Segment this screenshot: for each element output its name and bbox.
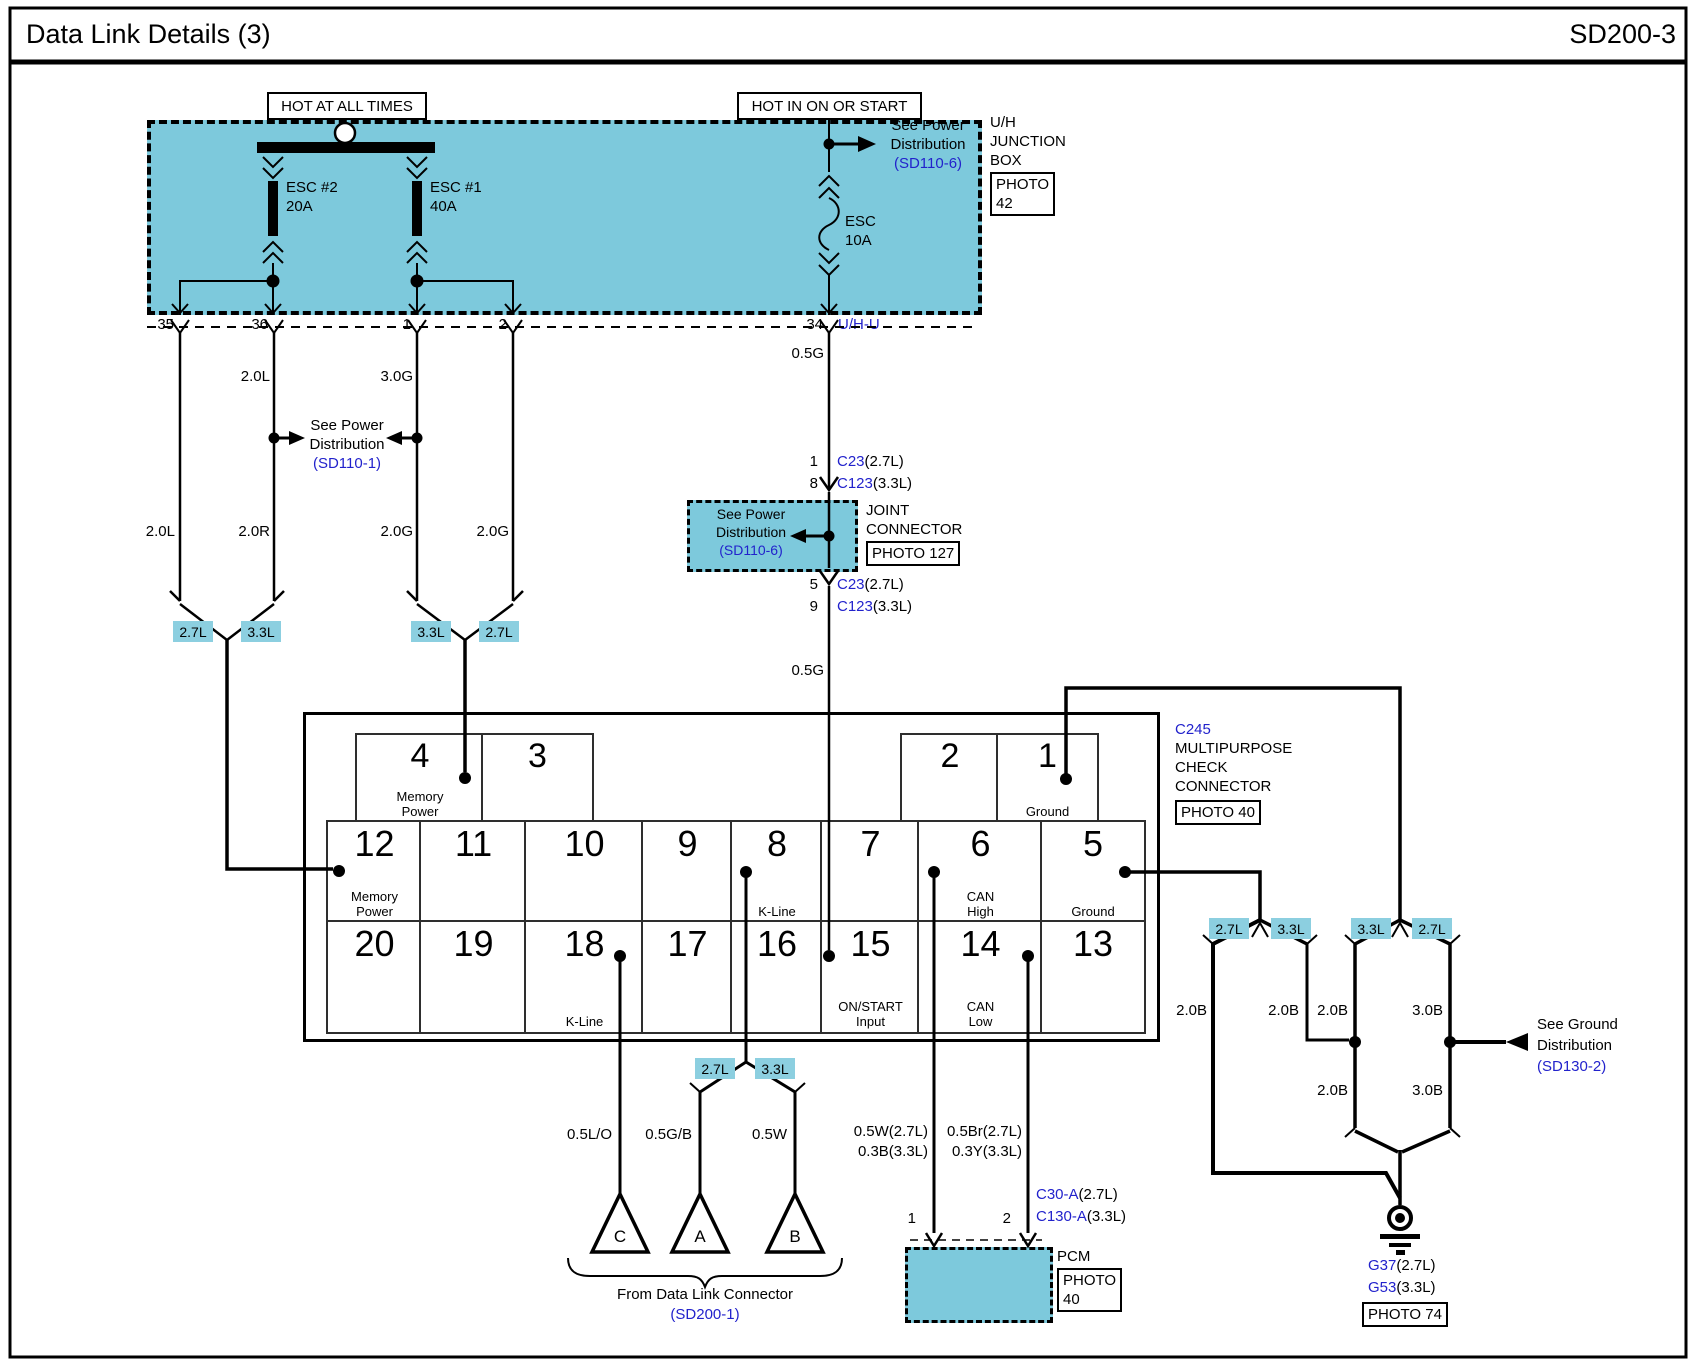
c245-cell-1: 1 Ground xyxy=(996,733,1099,824)
c245-cell-7: 7 xyxy=(820,820,921,924)
cell-20-num: 20 xyxy=(328,923,421,965)
pin-36: 36 xyxy=(228,316,268,334)
c245-cell-20: 20 xyxy=(326,920,423,1034)
conn-c123-engine2: (3.3L) xyxy=(873,598,912,615)
cell-12-label: Memory Power xyxy=(328,889,421,919)
engine-tag-2-7l-kline: 2.7L xyxy=(695,1058,735,1079)
cell-15-label: ON/START Input xyxy=(822,999,919,1029)
see-ground-line1: See Ground xyxy=(1537,1014,1618,1035)
photo-42-box: PHOTO 42 xyxy=(990,172,1055,216)
ground-ref-g53: G53(3.3L) xyxy=(1368,1279,1436,1297)
joint-pin-5: 5 xyxy=(796,576,818,594)
see-ground-arrow-left-icon xyxy=(1506,1033,1528,1051)
wire-label-pcm2: 0.5Br(2.7L) 0.3Y(3.3L) xyxy=(932,1122,1022,1162)
wire-label-pcm1-33: 0.3B(3.3L) xyxy=(838,1142,928,1162)
g53-engine: (3.3L) xyxy=(1396,1279,1435,1296)
photo-74-box: PHOTO 74 xyxy=(1362,1302,1448,1327)
uh-junction-box-label: U/H JUNCTION BOX xyxy=(990,113,1066,170)
photo-42-line2: 42 xyxy=(996,194,1049,213)
wire-label-0-5g-top: 0.5G xyxy=(779,345,824,363)
cell-3-num: 3 xyxy=(483,737,592,776)
cell-1-num: 1 xyxy=(998,737,1097,776)
wire-label-2-0b-1: 2.0B xyxy=(1162,1002,1207,1020)
wire-label-2-0b-2: 2.0B xyxy=(1254,1002,1299,1020)
photo-74-label: PHOTO 74 xyxy=(1368,1306,1442,1323)
cell-4-label2: Power xyxy=(357,804,483,819)
joint-name-line1: JOINT xyxy=(866,501,962,520)
wire-label-0-5lo: 0.5L/O xyxy=(558,1126,612,1144)
cell-8-label: K-Line xyxy=(732,904,822,919)
wire-label-pcm1: 0.5W(2.7L) 0.3B(3.3L) xyxy=(838,1122,928,1162)
uh-line2: JUNCTION xyxy=(990,132,1066,151)
c245-id-link: C245 xyxy=(1175,720,1292,739)
cell-11-num: 11 xyxy=(421,823,526,865)
engine-tag-3-3l-gnd2: 3.3L xyxy=(1351,918,1391,939)
wire-label-pcm1-27: 0.5W(2.7L) xyxy=(838,1122,928,1142)
c245-cell-6: 6 CAN High xyxy=(917,820,1044,924)
hot-at-all-times-box: HOT AT ALL TIMES xyxy=(267,92,427,120)
wire-label-2-0l-top: 2.0L xyxy=(225,368,270,386)
wire-label-pcm2-27: 0.5Br(2.7L) xyxy=(932,1122,1022,1142)
wire-label-2-0b-4: 2.0B xyxy=(1303,1082,1348,1100)
joint-name-line2: CONNECTOR xyxy=(866,520,962,539)
cell-5-label: Ground xyxy=(1042,904,1144,919)
joint-conn-ref-33-bottom: C123(3.3L) xyxy=(837,598,912,616)
wire-label-3-0g: 3.0G xyxy=(368,368,413,386)
wire-label-2-0g-b: 2.0G xyxy=(464,523,509,541)
see-power-line1: See Power xyxy=(872,116,984,135)
pcm-conn-ref-27: C30-A(2.7L) xyxy=(1036,1186,1118,1204)
c245-cell-17: 17 xyxy=(641,920,734,1034)
c245-cell-4: 4 Memory Power xyxy=(355,733,485,824)
engine-tag-2-7l-gnd1: 2.7L xyxy=(1209,918,1249,939)
engine-tag-2-7l-gnd2: 2.7L xyxy=(1412,918,1452,939)
from-data-link-connector-label: From Data Link Connector xyxy=(555,1286,855,1304)
conn-c123-engine: (3.3L) xyxy=(873,475,912,492)
conn-c23-engine2: (2.7L) xyxy=(865,576,904,593)
cell-13-num: 13 xyxy=(1042,923,1144,965)
photo-127-box: PHOTO 127 xyxy=(866,541,960,566)
cell-10-num: 10 xyxy=(526,823,643,865)
conn-c23-engine: (2.7L) xyxy=(865,453,904,470)
photo-40-label: PHOTO 40 xyxy=(1181,804,1255,821)
cell-4-label1: Memory xyxy=(357,789,483,804)
fuse-esc-amp: 10A xyxy=(845,231,872,250)
see-power2-line2: Distribution xyxy=(690,523,812,541)
c245-cell-9: 9 xyxy=(641,820,734,924)
cell-12-label1: Memory xyxy=(328,889,421,904)
ground-splits xyxy=(1203,920,1528,1205)
joint-pin-8: 8 xyxy=(796,475,818,493)
pin-2: 2 xyxy=(467,316,507,334)
uh-line1: U/H xyxy=(990,113,1066,132)
cell-6-label2: High xyxy=(919,904,1042,919)
cell-14-num: 14 xyxy=(919,923,1042,965)
joint-pin-1: 1 xyxy=(796,453,818,471)
engine-tag-3-3l-a: 3.3L xyxy=(241,621,281,642)
conn-c123-link: C123 xyxy=(837,475,873,492)
cell-14-label1: CAN xyxy=(919,999,1042,1014)
cell-18-num: 18 xyxy=(526,923,643,965)
pin-34: 34 xyxy=(783,316,823,334)
photo-127-label: PHOTO 127 xyxy=(872,545,954,562)
pcm-conn-ref-33: C130-A(3.3L) xyxy=(1036,1208,1126,1226)
fuse-esc2-name: ESC #2 xyxy=(286,178,338,197)
see-power2-line1: See Power xyxy=(690,505,812,523)
pcm-pin-receptacles xyxy=(910,1233,1042,1246)
g37-engine: (2.7L) xyxy=(1396,1257,1435,1274)
cell-15-label2: Input xyxy=(822,1014,919,1029)
see-power-distribution-sd110-1: See Power Distribution (SD110-1) xyxy=(296,416,398,473)
photo-40-pcm-box: PHOTO 40 xyxy=(1057,1268,1122,1312)
photo-40-pcm-line1: PHOTO xyxy=(1063,1271,1116,1290)
c245-cell-13: 13 xyxy=(1040,920,1146,1034)
c245-cell-19: 19 xyxy=(419,920,528,1034)
brace-icon xyxy=(568,1258,842,1287)
see-power-distribution-sd110-6-joint: See Power Distribution (SD110-6) xyxy=(690,505,812,559)
pcm-name: PCM xyxy=(1057,1248,1090,1266)
cell-15-label1: ON/START xyxy=(822,999,919,1014)
cell-16-num: 16 xyxy=(732,923,822,965)
fuse-esc-name: ESC xyxy=(845,212,876,231)
cell-19-num: 19 xyxy=(421,923,526,965)
joint-conn-ref-27-bottom: C23(2.7L) xyxy=(837,576,904,594)
cell-6-label1: CAN xyxy=(919,889,1042,904)
conn-c123-link2: C123 xyxy=(837,598,873,615)
see-power2-ref-link: (SD110-6) xyxy=(690,541,812,559)
wire-label-3-0b-2: 3.0B xyxy=(1398,1082,1443,1100)
cell-18-label: K-Line xyxy=(526,1014,643,1029)
see-power1-line2: Distribution xyxy=(296,435,398,454)
cell-15-num: 15 xyxy=(822,923,919,965)
photo-42-line1: PHOTO xyxy=(996,175,1049,194)
sd200-1-ref-link: (SD200-1) xyxy=(555,1306,855,1324)
c245-cell-3: 3 xyxy=(481,733,594,824)
cell-6-label: CAN High xyxy=(919,889,1042,919)
cell-17-num: 17 xyxy=(643,923,732,965)
cell-12-num: 12 xyxy=(328,823,421,865)
see-ground-ref-link: (SD130-2) xyxy=(1537,1056,1618,1077)
cell-9-num: 9 xyxy=(643,823,732,865)
cell-14-label2: Low xyxy=(919,1014,1042,1029)
hot-at-all-times-label: HOT AT ALL TIMES xyxy=(281,98,413,115)
c245-label-block: C245 MULTIPURPOSE CHECK CONNECTOR xyxy=(1175,720,1292,796)
wire-label-2-0l: 2.0L xyxy=(130,523,175,541)
photo-40-pcm-line2: 40 xyxy=(1063,1290,1116,1309)
g37-link: G37 xyxy=(1368,1257,1396,1274)
conn-c23-link2: C23 xyxy=(837,576,865,593)
pcm-box xyxy=(905,1247,1053,1323)
joint-conn-ref-27-top: C23(2.7L) xyxy=(837,453,904,471)
c245-cell-11: 11 xyxy=(419,820,528,924)
pin-1: 1 xyxy=(371,316,411,334)
feed-wires xyxy=(170,333,523,640)
c245-cell-18: 18 K-Line xyxy=(524,920,645,1034)
c245-name-line2: CHECK xyxy=(1175,758,1292,777)
engine-tag-2-7l-b: 2.7L xyxy=(479,621,519,642)
see-ground-distribution-sd130-2: See Ground Distribution (SD130-2) xyxy=(1537,1014,1618,1077)
wire-label-2-0g-a: 2.0G xyxy=(368,523,413,541)
engine-tag-3-3l-b: 3.3L xyxy=(411,621,451,642)
c245-cell-8: 8 K-Line xyxy=(730,820,824,924)
conn-c30a-link: C30-A xyxy=(1036,1186,1079,1203)
joint-pin-9: 9 xyxy=(796,598,818,616)
hot-in-on-or-start-label: HOT IN ON OR START xyxy=(752,98,908,115)
cell-7-num: 7 xyxy=(822,823,919,865)
uhu-wire-name: U/H-U xyxy=(838,316,880,334)
see-power1-ref-link: (SD110-1) xyxy=(296,454,398,473)
c245-name-line3: CONNECTOR xyxy=(1175,777,1292,796)
cell-1-label: Ground xyxy=(998,804,1097,819)
triangle-b-letter: B xyxy=(783,1228,807,1246)
page-title: Data Link Details (3) xyxy=(26,18,271,50)
wire-label-0-5w: 0.5W xyxy=(735,1126,787,1144)
pcm-pin-1: 1 xyxy=(894,1210,916,1228)
ground-symbol-icon xyxy=(1380,1207,1420,1255)
triangle-c-letter: C xyxy=(608,1228,632,1246)
joint-conn-ref-33-top: C123(3.3L) xyxy=(837,475,912,493)
see-ground-line2: Distribution xyxy=(1537,1035,1618,1056)
c245-cell-14: 14 CAN Low xyxy=(917,920,1044,1034)
pin-35: 35 xyxy=(134,316,174,334)
engine-tag-3-3l-gnd1: 3.3L xyxy=(1271,918,1311,939)
see-power1-line1: See Power xyxy=(296,416,398,435)
wire-label-pcm2-33: 0.3Y(3.3L) xyxy=(932,1142,1022,1162)
cell-2-num: 2 xyxy=(902,737,998,776)
ground-ref-g37: G37(2.7L) xyxy=(1368,1257,1436,1275)
joint-connector-name: JOINT CONNECTOR xyxy=(866,501,962,539)
wire-label-0-5g-bottom: 0.5G xyxy=(779,662,824,680)
wire-label-0-5gb: 0.5G/B xyxy=(638,1126,692,1144)
engine-tag-2-7l-a: 2.7L xyxy=(173,621,213,642)
see-power-distribution-sd110-6-top: See Power Distribution (SD110-6) xyxy=(872,116,984,173)
fuse-esc1-name: ESC #1 xyxy=(430,178,482,197)
pcm-pin-2: 2 xyxy=(989,1210,1011,1228)
fuse-esc2-amp: 20A xyxy=(286,197,313,216)
wire-label-3-0b-1: 3.0B xyxy=(1398,1002,1443,1020)
c245-cell-15: 15 ON/START Input xyxy=(820,920,921,1034)
c245-cell-10: 10 xyxy=(524,820,645,924)
c245-cell-16: 16 xyxy=(730,920,824,1034)
wire-label-2-0b-3: 2.0B xyxy=(1303,1002,1348,1020)
see-power-ref-link: (SD110-6) xyxy=(872,154,984,173)
c245-name-line1: MULTIPURPOSE xyxy=(1175,739,1292,758)
conn-c130a-engine: (3.3L) xyxy=(1087,1208,1126,1225)
c245-cell-5: 5 Ground xyxy=(1040,820,1146,924)
wire-label-2-0r: 2.0R xyxy=(225,523,270,541)
triangle-a-letter: A xyxy=(688,1228,712,1246)
wiring-diagram-page: Data Link Details (3) SD200-3 HOT AT ALL… xyxy=(0,0,1696,1365)
cell-4-num: 4 xyxy=(357,737,483,776)
c245-cell-2: 2 xyxy=(900,733,1000,824)
cell-6-num: 6 xyxy=(919,823,1042,865)
engine-tag-3-3l-kline: 3.3L xyxy=(755,1058,795,1079)
conn-c23-link: C23 xyxy=(837,453,865,470)
cell-5-num: 5 xyxy=(1042,823,1144,865)
cell-4-label: Memory Power xyxy=(357,789,483,819)
page-code: SD200-3 xyxy=(1480,18,1676,50)
cell-14-label: CAN Low xyxy=(919,999,1042,1029)
fuse-esc1-amp: 40A xyxy=(430,197,457,216)
conn-c30a-engine: (2.7L) xyxy=(1079,1186,1118,1203)
cell-8-num: 8 xyxy=(732,823,822,865)
c245-cell-12: 12 Memory Power xyxy=(326,820,423,924)
uh-line3: BOX xyxy=(990,151,1066,170)
photo-40-box: PHOTO 40 xyxy=(1175,800,1261,825)
cell-12-label2: Power xyxy=(328,904,421,919)
see-power-line2: Distribution xyxy=(872,135,984,154)
conn-c130a-link: C130-A xyxy=(1036,1208,1087,1225)
g53-link: G53 xyxy=(1368,1279,1396,1296)
